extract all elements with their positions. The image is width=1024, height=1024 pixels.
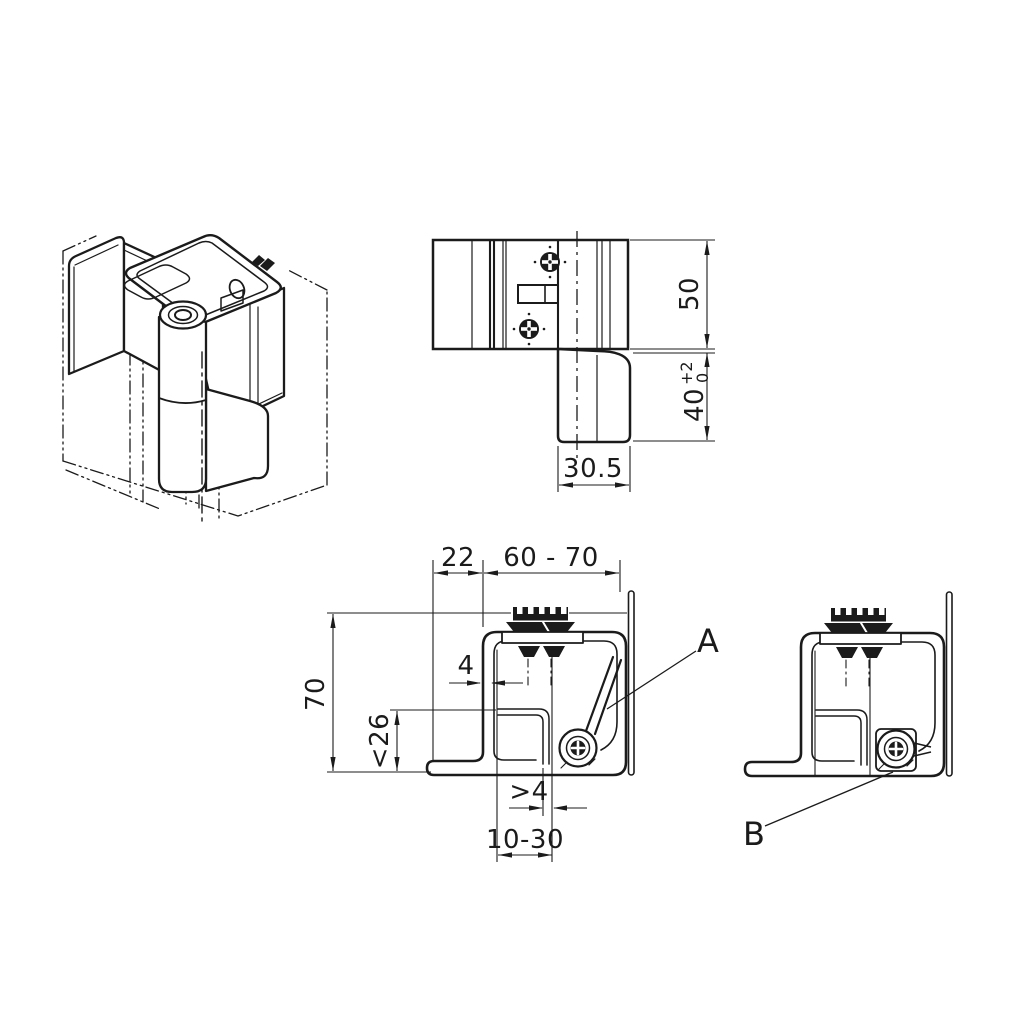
pin-hole	[175, 310, 191, 320]
pivot-assembly-b	[878, 731, 915, 770]
hinge-drawing-svg: 50 40 +2 0 30.5	[0, 0, 1024, 1024]
section-view-a: 22 60 - 70 70 <26 4 >4	[301, 543, 719, 862]
callout-b-label: B	[743, 815, 765, 853]
dim-lt26-label: <26	[365, 713, 395, 769]
dim-70-label: 70	[301, 677, 331, 711]
dim-22-label: 22	[441, 543, 475, 573]
front-barrel	[558, 349, 630, 442]
section-view-b: B	[743, 592, 952, 853]
dim-60-70-label: 60 - 70	[503, 543, 599, 573]
frame-leaf-left-face	[69, 237, 124, 374]
dim-gt4-label: >4	[509, 777, 548, 807]
door-knuckle	[206, 389, 268, 491]
hinge-barrel	[159, 317, 206, 492]
callout-b-leader	[765, 772, 893, 826]
pivot-assembly-a	[560, 730, 597, 769]
callout-a-label: A	[697, 622, 719, 660]
dim-30-5-label: 30.5	[563, 454, 623, 484]
isometric-view	[63, 235, 327, 524]
front-view: 50 40 +2 0 30.5	[433, 231, 715, 492]
dim-40-label: 40	[680, 388, 710, 422]
technical-drawing-page: 50 40 +2 0 30.5	[0, 0, 1024, 1024]
dim-10-30-label: 10-30	[486, 825, 564, 855]
dim-40-tol-minus: 0	[693, 373, 712, 383]
dim-4-label: 4	[457, 651, 474, 681]
dim-50-label: 50	[675, 277, 705, 311]
